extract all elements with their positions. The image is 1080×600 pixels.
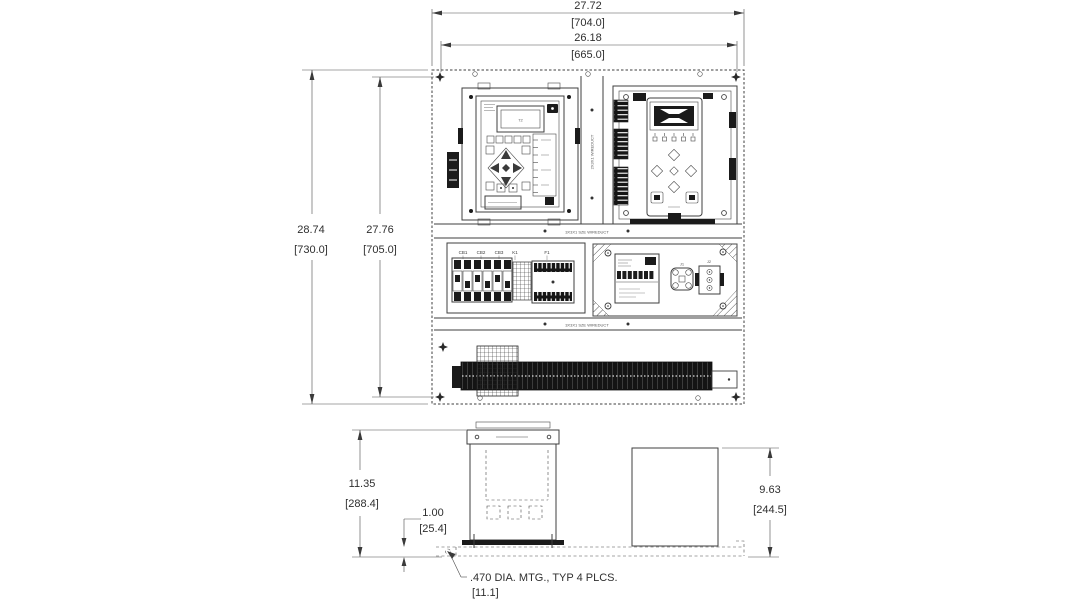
relay-arrow-keypad xyxy=(486,146,530,192)
controller-arrow-keypad xyxy=(651,149,696,192)
label-cb1: CB1 xyxy=(459,250,468,255)
side-view: 11.35 [288.4] 1.00 [25.4] 9.63 [244.5] xyxy=(345,422,787,599)
vertical-duct-label: 2X3X1 WIREDUCT xyxy=(590,134,595,169)
panel-dimensional-drawing: 2X3X1 WIREDUCT 3X3X1 SZE WIREDUCT 3X3X1 … xyxy=(0,0,1080,600)
relay-button-row xyxy=(487,136,530,143)
terminal-connector-label: J2 xyxy=(707,259,712,264)
controller-side-profile xyxy=(632,448,718,546)
round-connector: J1 xyxy=(671,262,693,291)
dim-width-outer-in: 27.72 xyxy=(574,0,602,12)
dim-height-outer-mm: [730.0] xyxy=(294,244,328,256)
power-supply xyxy=(615,254,659,303)
dim-width-inner: 26.18 [665.0] xyxy=(441,32,737,72)
relay-display: 72 xyxy=(497,106,544,132)
breaker-plate: CB1 CB2 CB3 K1 F1 xyxy=(447,243,585,313)
controller-led-row xyxy=(653,133,695,141)
mounting-note-line2: [11.1] xyxy=(472,587,499,599)
terminal-connector: J2 xyxy=(695,259,724,294)
mid-duct-label: 3X3X1 SZE WIREDUCT xyxy=(565,230,609,235)
dim-height-inner-mm: [705.0] xyxy=(363,244,397,256)
io-plate: J1 J2 xyxy=(593,244,737,316)
dim-side-height-left: 11.35 [288.4] xyxy=(345,430,466,557)
dim-height-outer-in: 28.74 xyxy=(297,224,325,236)
front-view: 2X3X1 WIREDUCT 3X3X1 SZE WIREDUCT 3X3X1 … xyxy=(294,0,744,404)
dim-width-inner-in: 26.18 xyxy=(574,32,602,44)
controller-buttons xyxy=(651,192,698,203)
dim-height-outer: 28.74 [730.0] xyxy=(294,70,428,404)
terminal-marker-block xyxy=(477,346,518,396)
dim-side-height-right-mm: [244.5] xyxy=(753,504,787,516)
dim-side-offset-mm: [25.4] xyxy=(419,523,447,535)
mounting-note-line1: .470 DIA. MTG., TYP 4 PLCS. xyxy=(470,572,618,584)
dim-width-outer-mm: [704.0] xyxy=(571,17,605,29)
dim-height-inner: 27.76 [705.0] xyxy=(363,77,434,397)
controller-display xyxy=(650,102,698,130)
lower-duct-label: 3X3X1 SZE WIREDUCT xyxy=(565,323,609,328)
dim-side-offset: 1.00 [25.4] xyxy=(402,507,447,572)
relay-socket-k1 xyxy=(513,262,531,300)
dim-side-height-right: 9.63 [244.5] xyxy=(722,448,787,557)
wire-duct-lower: 3X3X1 SZE WIREDUCT xyxy=(544,323,630,328)
dim-side-height-left-in: 11.35 xyxy=(349,478,376,490)
relay-logo-icon xyxy=(547,104,558,113)
label-k1: K1 xyxy=(512,250,518,255)
relay-f1 xyxy=(532,261,574,303)
controller-terminal-combs xyxy=(614,100,628,205)
dim-side-height-right-in: 9.63 xyxy=(759,484,780,496)
engineering-drawing-page: 2X3X1 WIREDUCT 3X3X1 SZE WIREDUCT 3X3X1 … xyxy=(0,0,1080,600)
dim-height-inner-in: 27.76 xyxy=(366,224,394,236)
dim-side-offset-in: 1.00 xyxy=(422,507,443,519)
dim-width-inner-mm: [665.0] xyxy=(571,49,605,61)
relay-side-profile xyxy=(462,422,564,548)
controller-device xyxy=(613,86,737,224)
label-cb2: CB2 xyxy=(477,250,486,255)
wire-duct-mid: 3X3X1 SZE WIREDUCT xyxy=(544,230,630,235)
mounting-note: .470 DIA. MTG., TYP 4 PLCS. [11.1] xyxy=(447,551,618,599)
round-connector-label: J1 xyxy=(680,262,685,267)
relay-side-connector xyxy=(447,152,459,188)
relay-display-text: 72 xyxy=(518,118,523,123)
vertical-wire-duct: 2X3X1 WIREDUCT xyxy=(581,76,603,224)
dim-side-height-left-mm: [288.4] xyxy=(345,498,379,510)
relay-led-column xyxy=(533,134,556,196)
terminal-rail xyxy=(438,342,737,396)
label-f1: F1 xyxy=(544,250,550,255)
label-cb3: CB3 xyxy=(495,250,504,255)
relay-device: 72 xyxy=(447,83,580,225)
circuit-breaker-bank xyxy=(452,258,512,302)
